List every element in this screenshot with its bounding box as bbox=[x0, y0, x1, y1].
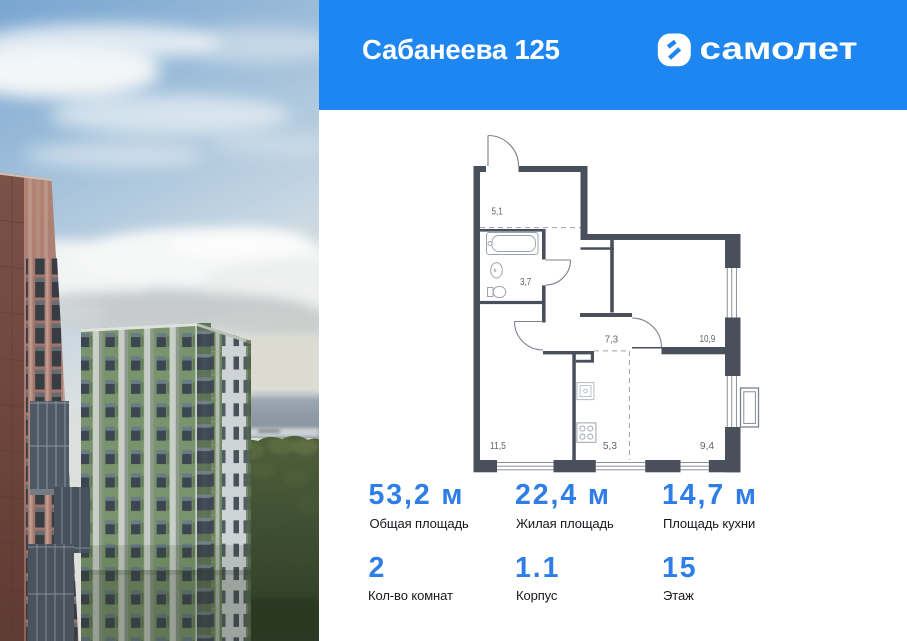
svg-text:7,3: 7,3 bbox=[605, 333, 618, 345]
svg-text:9,4: 9,4 bbox=[700, 440, 714, 452]
svg-text:самолет: самолет bbox=[700, 30, 858, 66]
svg-text:5,1: 5,1 bbox=[492, 205, 503, 217]
svg-text:11,5: 11,5 bbox=[490, 440, 506, 452]
svg-text:3,7: 3,7 bbox=[520, 276, 531, 288]
svg-text:10,9: 10,9 bbox=[700, 333, 716, 345]
svg-text:5,3: 5,3 bbox=[603, 440, 617, 452]
